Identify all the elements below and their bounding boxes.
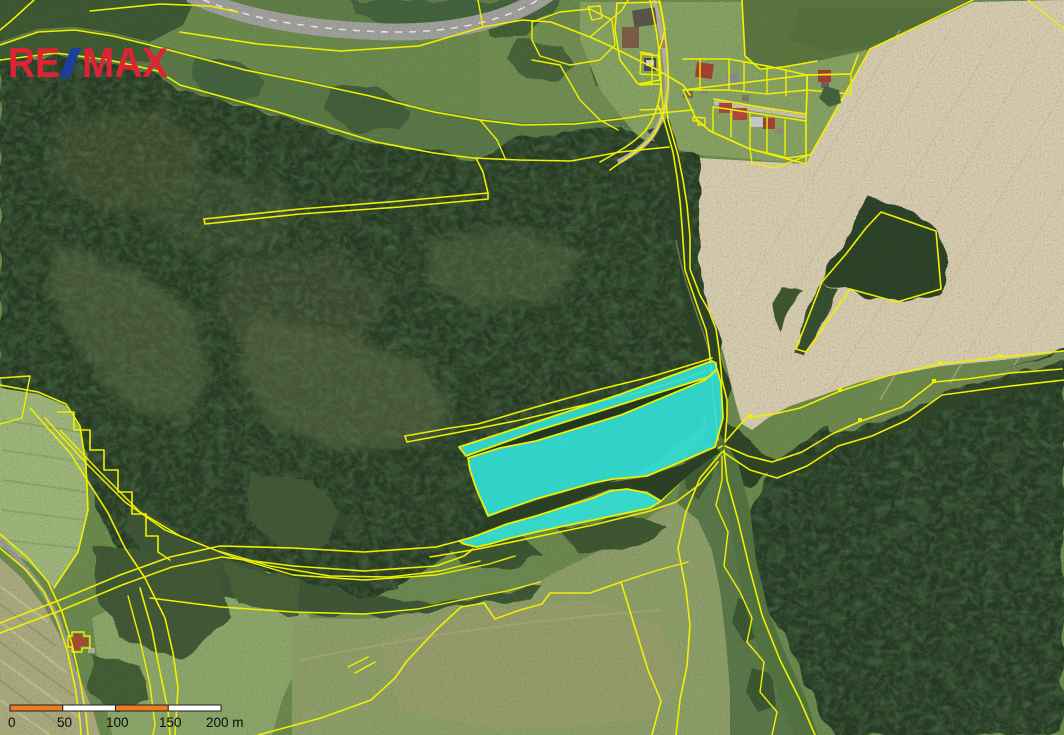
svg-text:MAX: MAX <box>82 39 168 86</box>
svg-text:200 m: 200 m <box>206 715 244 730</box>
svg-text:100: 100 <box>106 715 129 730</box>
svg-text:0: 0 <box>8 715 16 730</box>
svg-text:RE: RE <box>8 39 60 86</box>
svg-text:150: 150 <box>159 715 182 730</box>
svg-text:50: 50 <box>57 715 72 730</box>
